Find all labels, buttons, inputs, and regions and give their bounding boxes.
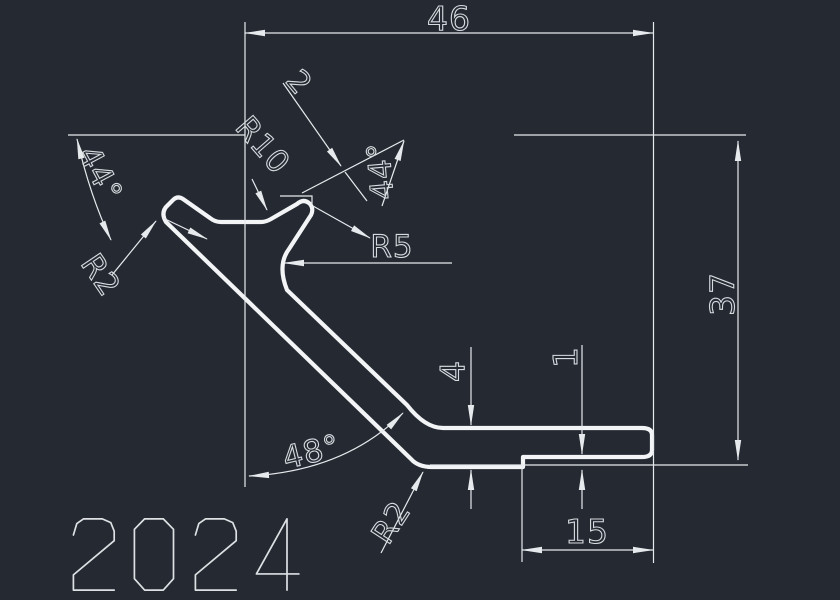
dim-angle-left: 44°: [70, 139, 207, 240]
dim-angle-incline-label: 48°: [279, 428, 344, 477]
dim-inner-fillet: R5: [284, 229, 452, 265]
dim-lip-offset-label: 1: [546, 346, 585, 368]
dim-groove-radius-leader: [252, 179, 267, 210]
dim-groove-radius-label: R10: [228, 109, 297, 181]
dim-tab-thickness: 2: [278, 63, 367, 201]
dim-tip-fillet-leader: [112, 221, 156, 275]
dim-tab-thickness-label: 2: [278, 63, 319, 102]
dim-inner-fillet-label: R5: [370, 229, 413, 265]
extension-lines: [68, 22, 748, 563]
dim-tip-fillet-label: R2: [73, 247, 127, 303]
dim-angle-right-arc-lower: [313, 206, 370, 238]
dim-heel-fillet-label: R2: [365, 495, 419, 551]
dim-angle-incline: 48°: [249, 413, 403, 477]
cad-viewport: 46 37 15 4 1 2 R10 R5 4: [0, 0, 840, 600]
dim-angle-right: 44°: [302, 140, 404, 238]
cad-drawing-canvas: 46 37 15 4 1 2 R10 R5 4: [0, 0, 840, 600]
dim-groove-radius: R10: [228, 109, 297, 210]
dim-tip-fillet: R2: [73, 221, 156, 303]
dim-heel-fillet: R2: [365, 472, 423, 553]
dim-angle-right-label: 44°: [361, 140, 402, 201]
dim-overall-height: 37: [703, 141, 742, 460]
dim-overall-width: 46: [245, 0, 653, 38]
dim-angle-left-extension: [163, 218, 207, 239]
dim-flange-length-label: 15: [565, 512, 609, 551]
dim-wall-thickness-label: 4: [433, 360, 472, 382]
part-number: 2024: [70, 509, 299, 600]
dim-overall-width-label: 46: [427, 0, 471, 38]
dim-overall-height-label: 37: [703, 272, 742, 316]
dim-flange-length: 15: [522, 512, 653, 551]
